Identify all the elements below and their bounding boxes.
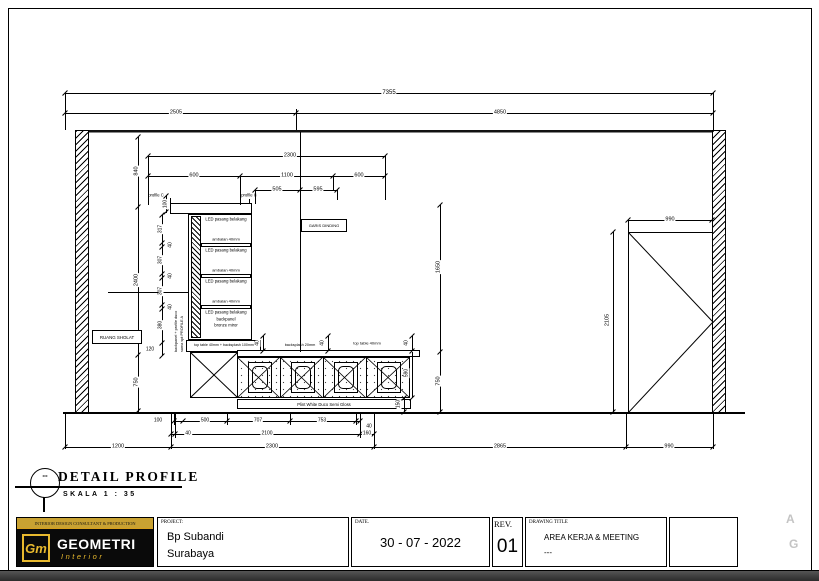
dim-label: 307 — [159, 255, 164, 265]
dim-label: 40 — [365, 425, 373, 430]
dim-label: 840 — [134, 165, 140, 176]
profile-note: profile C — [241, 194, 257, 199]
line — [412, 352, 413, 398]
dim-label: 2300 — [265, 444, 279, 450]
dim-label: 600 — [188, 173, 199, 179]
dim-label: 990 — [663, 444, 674, 450]
line — [240, 177, 241, 205]
drawing-subtitle: --- — [544, 548, 552, 557]
titleblock-project-cell: PROJECT: Bp Subandi Surabaya — [157, 517, 349, 567]
dim-label: 600 — [353, 173, 364, 179]
led-note: LED pasang belakang — [205, 249, 246, 254]
line — [366, 357, 367, 398]
titleblock-logo-cell: INTERIOR DESIGN CONSULTANT & PRODUCTION … — [16, 517, 154, 567]
dim-label: 120 — [145, 348, 155, 353]
plint-label: Plint White Duco Semi Gloss — [297, 402, 351, 407]
dim-label: 317 — [159, 224, 164, 234]
dim-label: 40 — [169, 272, 174, 280]
top-table-note: top table 40mm — [353, 342, 381, 347]
drawer-handle-outline — [338, 366, 354, 389]
edge-mark: G — [789, 537, 798, 551]
drawer-front — [377, 362, 401, 393]
dim-label: 40 — [256, 339, 261, 347]
dim-label: 40 — [169, 241, 174, 249]
dim-label: 2400 — [134, 273, 140, 287]
dim-label: 2865 — [493, 444, 507, 450]
drawer-front — [248, 362, 272, 393]
dim-label: 40 — [184, 432, 192, 437]
plint-base: Plint White Duco Semi Gloss — [237, 399, 411, 409]
shelf-note: ambalan 40mm — [212, 238, 240, 243]
section-marker: -- — [30, 468, 60, 498]
rev-value: 01 — [497, 536, 518, 558]
date-value: 30 - 07 - 2022 — [380, 535, 461, 550]
dim-label: 2300 — [283, 153, 297, 159]
logo-name: GEOMETRI — [57, 536, 136, 552]
line — [108, 292, 188, 293]
side-panel-note: backpanel + profile duco — [174, 311, 178, 352]
cabinet-shelf — [201, 305, 251, 309]
ruang-sholat-tag: RUANG SHOLAT — [92, 330, 142, 344]
dim-label: 750 — [134, 376, 140, 387]
dim-label: 40 — [321, 339, 326, 347]
dim-label: 4850 — [493, 110, 507, 116]
dim-label: 40 — [169, 303, 174, 311]
line — [148, 176, 386, 177]
side-panel-note: sama spt PROFILE A — [180, 316, 184, 352]
drawer-handle-outline — [295, 366, 311, 389]
titleblock-drawing-cell: DRAWING TITLE AREA KERJA & MEETING --- — [525, 517, 667, 567]
backpanel-note: bronze miror — [214, 324, 238, 329]
drawing-sheet: Plint White Duco Semi Gloss 7355 2505 48… — [0, 0, 819, 580]
line — [65, 447, 714, 448]
shelf-note: ambalan 40mm — [212, 300, 240, 305]
section-marker-text: -- — [42, 471, 47, 480]
line — [170, 198, 171, 203]
dim-label: 160 — [362, 432, 372, 437]
project-name: Bp Subandi — [167, 531, 224, 543]
dim-label: 2100 — [260, 432, 273, 437]
titleblock-date-cell: DATE. 30 - 07 - 2022 — [351, 517, 490, 567]
drawer-handle-outline — [252, 366, 268, 389]
cabinet-shelf — [201, 274, 251, 278]
edge-mark: A — [786, 512, 795, 526]
line — [440, 205, 441, 353]
ceiling-line — [75, 130, 726, 133]
drawer-handle-outline — [381, 366, 397, 389]
dim-label: 7355 — [381, 90, 396, 96]
dim-label: 2505 — [169, 110, 183, 116]
dim-label: 505 — [271, 187, 282, 193]
dim-label: 307 — [159, 286, 164, 296]
dim-label: 707 — [253, 419, 263, 424]
line — [300, 132, 301, 352]
dim-label: 500 — [200, 419, 210, 424]
right-wall — [712, 130, 726, 413]
backsplash-note: backsplash 20mm — [285, 343, 316, 347]
door-swing-lines — [628, 232, 713, 413]
dim-label: 595 — [312, 187, 323, 193]
line — [333, 177, 334, 190]
section-scale: SKALA 1 : 35 — [63, 491, 137, 498]
line — [385, 157, 386, 200]
cabinet-shelf — [201, 243, 251, 247]
date-label: DATE. — [355, 520, 369, 525]
rev-label: REV. — [494, 519, 512, 529]
dim-label: 990 — [664, 217, 675, 223]
line — [280, 357, 281, 398]
garis-dinding-tag: GARIS DINDING — [301, 219, 347, 232]
section-title-rule — [15, 486, 182, 488]
line — [613, 232, 614, 413]
titleblock-rev-cell: REV. 01 — [492, 517, 523, 567]
dim-label: 1100 — [280, 173, 294, 179]
line — [65, 113, 714, 114]
dim-label: 753 — [317, 419, 327, 424]
dim-label: 1650 — [436, 260, 442, 274]
drawer-front — [291, 362, 315, 393]
line — [628, 221, 629, 232]
dim-label: 2105 — [605, 313, 611, 327]
line — [337, 191, 338, 200]
dim-label: 150 — [397, 399, 402, 409]
led-note: LED pasang belakang — [205, 311, 246, 316]
profile-note: profile C — [148, 194, 164, 199]
dim-label: 590 — [405, 368, 410, 378]
shelf-note: ambalan 40mm — [212, 269, 240, 274]
dim-label: 40 — [405, 339, 410, 347]
dim-label: 100 — [164, 199, 169, 209]
line — [148, 156, 386, 157]
led-note: LED pasang belakang — [205, 218, 246, 223]
led-note: LED pasang belakang — [205, 280, 246, 285]
drawing-title: AREA KERJA & MEETING — [544, 533, 639, 542]
drawer-front — [334, 362, 358, 393]
dim-label: 380 — [159, 320, 164, 330]
logo-monogram-icon: Gm — [22, 534, 50, 562]
company-logo: Gm GEOMETRI Interior — [17, 528, 153, 566]
dim-label: 1200 — [111, 444, 125, 450]
project-city: Surabaya — [167, 548, 214, 560]
line — [249, 199, 250, 203]
drawing-title-label: DRAWING TITLE — [529, 520, 568, 525]
cabinet-side-panel — [191, 216, 201, 338]
base-cabinet-cross-lines — [190, 352, 238, 398]
dim-label: 100 — [153, 419, 163, 424]
top-table-note: top table 40mm + backsplash 100mm — [194, 343, 254, 347]
titleblock-empty-cell — [669, 517, 738, 567]
project-label: PROJECT: — [161, 520, 183, 525]
section-title: DETAIL PROFILE — [58, 469, 199, 485]
logo-subtitle: Interior — [61, 552, 104, 561]
line — [323, 357, 324, 398]
dim-label: 750 — [436, 375, 442, 386]
window-bottom-bar — [0, 570, 819, 581]
left-wall — [75, 130, 89, 413]
